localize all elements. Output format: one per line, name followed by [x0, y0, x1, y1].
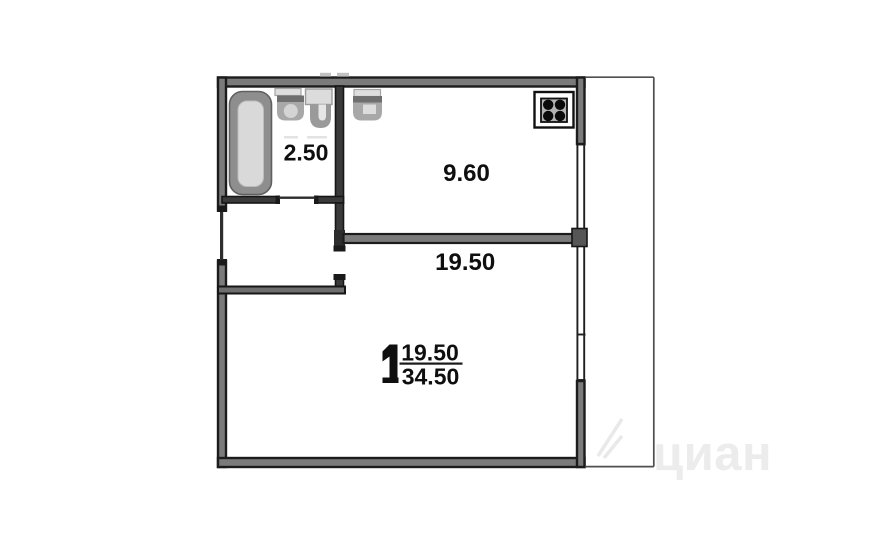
svg-text:9.60: 9.60: [443, 160, 490, 187]
svg-text:циан: циан: [653, 427, 772, 481]
svg-text:19.50: 19.50: [435, 249, 495, 276]
svg-text:34.50: 34.50: [402, 364, 460, 390]
svg-text:2.50: 2.50: [284, 140, 329, 166]
svg-text:19.50: 19.50: [401, 340, 459, 366]
